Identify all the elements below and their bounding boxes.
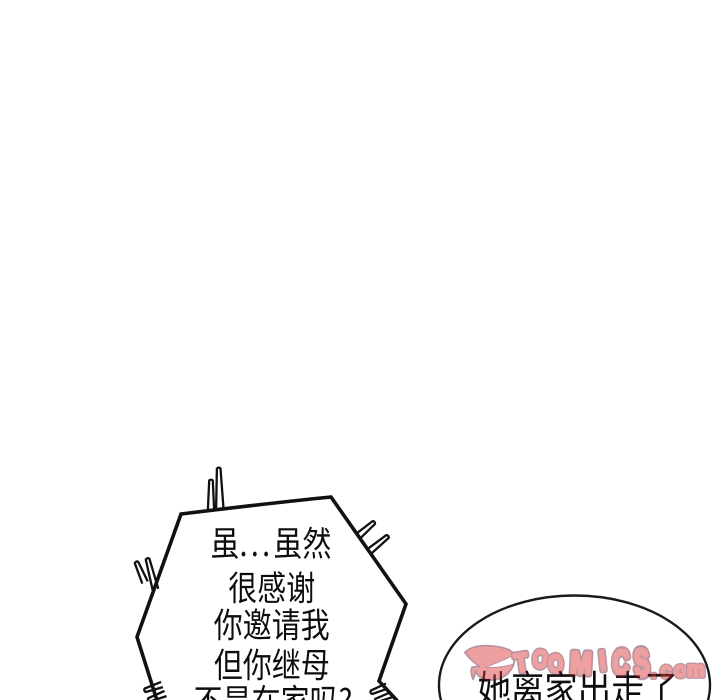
svg-text:.: . [651, 659, 657, 683]
svg-text:m: m [687, 658, 705, 682]
svg-text:S: S [632, 641, 650, 684]
svg-text:M: M [570, 646, 593, 681]
svg-text:O: O [532, 645, 549, 674]
svg-text:c: c [660, 659, 671, 683]
svg-text:o: o [674, 659, 686, 683]
svg-text:O: O [547, 649, 564, 678]
svg-text:C: C [611, 644, 630, 682]
